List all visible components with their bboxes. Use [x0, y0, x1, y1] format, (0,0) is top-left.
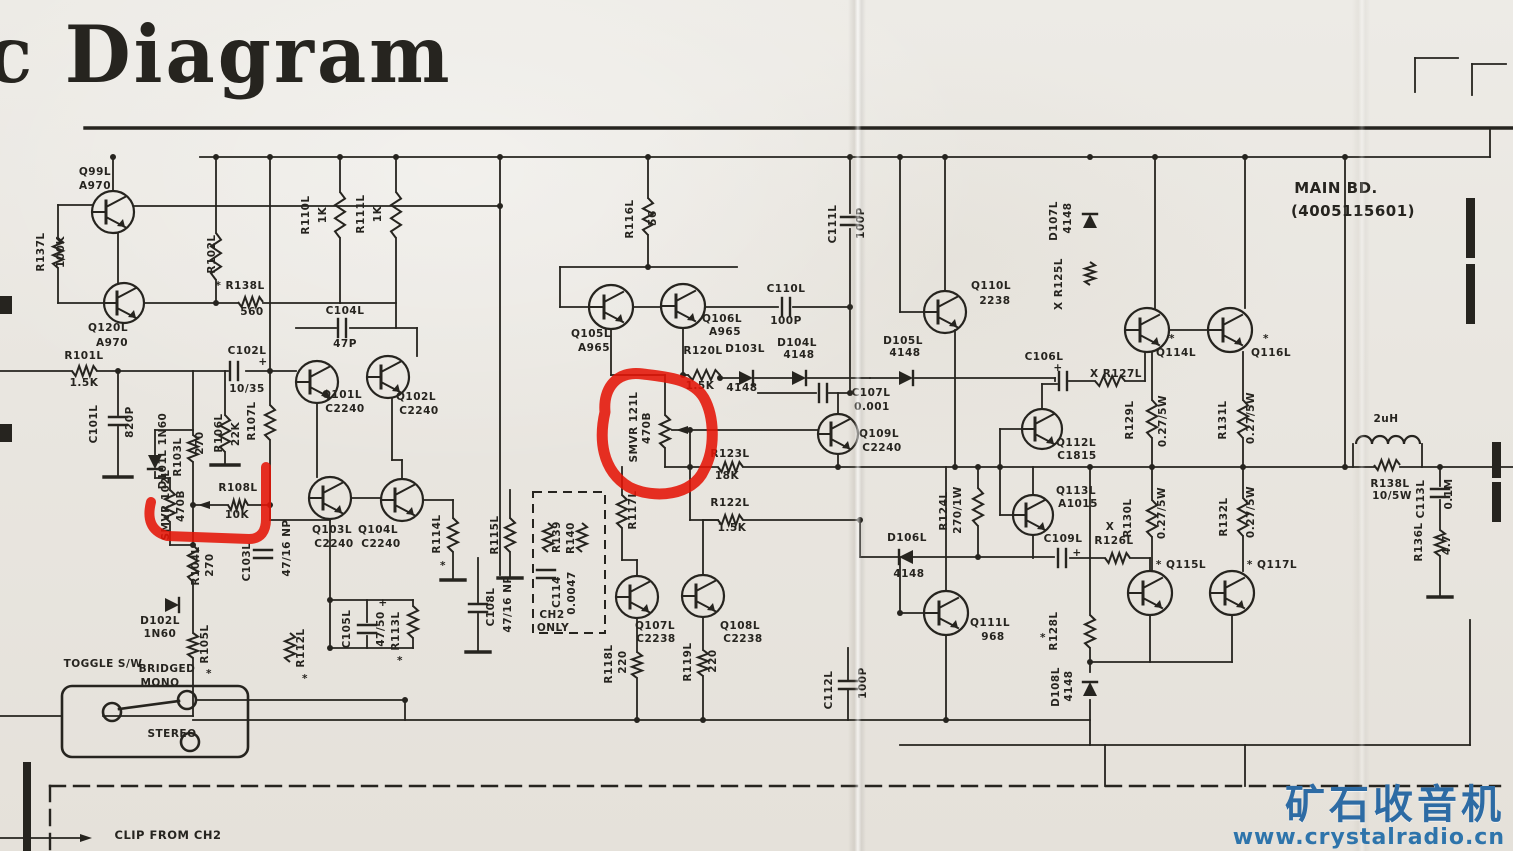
- component-label: Q99L: [79, 166, 111, 178]
- transistor-symbol: [323, 483, 342, 493]
- component-label: D102L: [140, 615, 180, 627]
- junction-dot: [1087, 154, 1093, 160]
- resistor-symbol: [188, 633, 198, 658]
- component-label: 100P: [770, 315, 802, 327]
- component-label: R101L: [64, 350, 103, 362]
- junction-dot: [1342, 464, 1348, 470]
- resistor-symbol: [1105, 553, 1130, 563]
- component-label: Q120L: [88, 322, 128, 334]
- component-label: C2240: [862, 442, 901, 454]
- component-label: R115L: [489, 515, 501, 554]
- component-label: 4148: [889, 347, 920, 359]
- component-label: 270: [204, 553, 216, 576]
- junction-dot: [402, 697, 408, 703]
- component-label: R111L: [355, 194, 367, 233]
- component-label: R104L: [190, 546, 202, 585]
- component-label: R130L: [1122, 498, 1134, 537]
- junction-dot: [1152, 154, 1158, 160]
- transistor-symbol: [604, 292, 623, 302]
- component-label: R138L: [1370, 478, 1409, 490]
- component-label: MONO: [140, 677, 179, 689]
- component-label: 1N60: [144, 628, 177, 640]
- junction-dot: [857, 517, 863, 523]
- component-label: 4148: [893, 568, 924, 580]
- component-label: Q111L: [970, 617, 1010, 629]
- resistor-symbol: [1147, 400, 1157, 438]
- component-label: 47/16 NP: [502, 575, 514, 632]
- terminal-bar: [1492, 442, 1501, 478]
- component-label: 4148: [783, 349, 814, 361]
- component-label: *: [302, 673, 308, 685]
- component-label: R114L: [431, 514, 443, 553]
- component-label: 820P: [124, 406, 136, 438]
- transistor-symbol: [696, 581, 715, 591]
- junction-dot: [634, 717, 640, 723]
- component-label: R105L: [199, 624, 211, 663]
- component-label: D105L: [883, 335, 923, 347]
- diode-symbol: [899, 371, 913, 385]
- component-label: R129L: [1124, 400, 1136, 439]
- component-label: Q106L: [702, 313, 742, 325]
- resistor-symbol: [1374, 460, 1400, 470]
- junction-dot: [110, 154, 116, 160]
- transistor-symbol: [938, 297, 957, 307]
- junction-dot: [897, 154, 903, 160]
- terminal-bar: [1492, 482, 1501, 522]
- component-label: *: [1263, 333, 1269, 345]
- component-label: R120L: [683, 345, 722, 357]
- junction-dot: [1087, 659, 1093, 665]
- junction-dot: [1087, 464, 1093, 470]
- resistor-symbol: [265, 405, 275, 440]
- component-label: C113L: [1415, 480, 1427, 519]
- component-label: Q108L: [720, 620, 760, 632]
- junction-dot: [393, 154, 399, 160]
- diode-symbol: [1083, 682, 1097, 696]
- terminal-bar: [1466, 264, 1475, 324]
- component-label: 47P: [333, 338, 357, 350]
- junction-dot: [1437, 464, 1443, 470]
- component-label: C104L: [326, 305, 365, 317]
- component-label: *: [440, 560, 446, 572]
- junction-dot: [997, 464, 1003, 470]
- junction-dot: [190, 502, 196, 508]
- junction-dot: [337, 154, 343, 160]
- transistor-symbol: [310, 367, 329, 377]
- arrow-head: [198, 501, 210, 509]
- component-label: R119L: [682, 642, 694, 681]
- junction-dot: [942, 154, 948, 160]
- component-label: A970: [96, 337, 128, 349]
- junction-dot: [1240, 464, 1246, 470]
- component-label: R117L: [627, 490, 639, 529]
- resistor-symbol: [617, 495, 627, 528]
- transistor-symbol: [1223, 315, 1242, 325]
- junction-dot: [943, 717, 949, 723]
- terminal-bar: [0, 424, 12, 442]
- junction-dot: [213, 154, 219, 160]
- component-label: R103L: [172, 437, 184, 476]
- component-label: R122L: [710, 497, 749, 509]
- resistor-symbol: [335, 192, 345, 238]
- component-label: A1015: [1058, 498, 1098, 510]
- component-label: C1815: [1057, 450, 1096, 462]
- component-label: 270/1W: [952, 486, 964, 534]
- component-label: (4005115601): [1291, 202, 1415, 220]
- transistor-symbol: [831, 419, 850, 429]
- component-label: R131L: [1217, 400, 1229, 439]
- component-label: 470B: [175, 490, 187, 522]
- component-label: 0.001: [854, 401, 890, 413]
- component-label: X R127L: [1090, 368, 1142, 380]
- component-label: A970: [79, 180, 111, 192]
- transistor-symbol: [1140, 315, 1159, 325]
- toggle-switch-contact: [103, 703, 121, 721]
- junction-dot: [327, 597, 333, 603]
- component-label: 10/35: [229, 383, 265, 395]
- component-label: 100P: [855, 207, 867, 239]
- toggle-switch-box: [62, 686, 248, 757]
- component-label: R112L: [295, 628, 307, 667]
- junction-dot: [835, 464, 841, 470]
- component-label: C107L: [852, 387, 891, 399]
- component-label: 2238: [979, 295, 1010, 307]
- junction-dot: [1149, 464, 1155, 470]
- junction-dot: [1242, 154, 1248, 160]
- transistor-symbol: [1225, 578, 1244, 588]
- component-label: 10/5W: [1372, 490, 1412, 502]
- junction-dot: [975, 554, 981, 560]
- component-label: X: [1106, 521, 1115, 533]
- component-label: BRIDGED: [139, 663, 196, 675]
- component-label: Q109L: [859, 428, 899, 440]
- component-label: 47/50: [375, 611, 387, 647]
- component-label: 470B: [641, 412, 653, 444]
- component-label: C103L: [241, 543, 253, 582]
- transistor-symbol: [1026, 500, 1045, 510]
- junction-dot: [645, 154, 651, 160]
- junction-dot: [687, 464, 693, 470]
- component-label: 4148: [1063, 670, 1075, 701]
- component-label: D103L: [725, 343, 765, 355]
- component-label: C2240: [314, 538, 353, 550]
- component-label: C105L: [341, 610, 353, 649]
- component-label: 0.1M: [1443, 478, 1455, 509]
- component-label: * Q117L: [1247, 559, 1297, 571]
- component-label: 968: [981, 631, 1004, 643]
- component-label: 10K: [225, 509, 250, 521]
- component-label: R140: [565, 522, 577, 554]
- component-label: *: [206, 668, 212, 680]
- component-label: C101L: [88, 405, 100, 444]
- component-label: 100P: [857, 667, 869, 699]
- resistor-symbol: [660, 415, 670, 448]
- component-label: R139: [551, 521, 563, 553]
- component-label: 1K: [372, 205, 384, 222]
- component-label: Q110L: [971, 280, 1011, 292]
- component-label: 0.27/5W: [1245, 486, 1257, 538]
- junction-dot: [267, 154, 273, 160]
- diode-symbol: [1083, 214, 1097, 228]
- component-label: 220: [707, 649, 719, 672]
- component-label: 1.5K: [718, 522, 747, 534]
- component-label: Q116L: [1251, 347, 1291, 359]
- component-label: * Q115L: [1156, 559, 1206, 571]
- component-label: 0.0047: [566, 571, 578, 615]
- terminal-bar: [23, 762, 31, 851]
- component-label: D104L: [777, 337, 817, 349]
- junction-dot: [847, 154, 853, 160]
- component-label: STEREO: [147, 728, 196, 740]
- component-label: R107L: [246, 401, 258, 440]
- component-label: 100K: [55, 236, 67, 268]
- component-label: 0.27/5W: [1156, 487, 1168, 539]
- component-label: 4148: [1062, 202, 1074, 233]
- component-label: 270: [194, 431, 206, 454]
- component-label: Q104L: [358, 524, 398, 536]
- component-label: R132L: [1218, 497, 1230, 536]
- component-label: R118L: [603, 644, 615, 683]
- resistor-symbol: [448, 518, 458, 552]
- junction-dot: [975, 464, 981, 470]
- component-label: 18K: [715, 470, 740, 482]
- component-label: 560: [240, 306, 263, 318]
- resistor-symbol: [973, 488, 983, 526]
- junction-dot: [115, 368, 121, 374]
- component-label: 1.5K: [70, 377, 99, 389]
- transistor-symbol: [1143, 578, 1162, 588]
- transistor-symbol: [117, 288, 136, 298]
- junction-dot: [952, 464, 958, 470]
- component-label: D106L: [887, 532, 927, 544]
- toggle-switch-arm: [119, 701, 179, 709]
- component-label: R136L: [1413, 522, 1425, 561]
- component-label: +: [258, 356, 267, 368]
- component-label: C108L: [485, 588, 497, 627]
- component-label: 2uH: [1373, 413, 1398, 425]
- component-label: Q113L: [1056, 485, 1096, 497]
- resistor-symbol: [408, 606, 418, 638]
- junction-dot: [897, 610, 903, 616]
- component-label: 1K: [317, 206, 329, 223]
- coil-symbol: [1356, 436, 1420, 444]
- component-label: 4.7: [1441, 535, 1453, 555]
- diode-symbol: [792, 371, 806, 385]
- transistor-symbol: [676, 291, 695, 301]
- component-label: TOGGLE S/W: [64, 658, 143, 670]
- junction-dot: [213, 300, 219, 306]
- schematic-sheet: c Diagram Q99LA970Q120LA970R101L1.5K* R1…: [0, 0, 1513, 851]
- component-label: C2240: [361, 538, 400, 550]
- component-label: +: [1053, 362, 1062, 374]
- component-label: D108L: [1050, 667, 1062, 707]
- component-label: 0.27/5W: [1157, 395, 1169, 447]
- transistor-symbol: [381, 362, 400, 372]
- component-label: C2240: [399, 405, 438, 417]
- component-label: C114: [551, 576, 563, 608]
- component-label: 22K: [230, 422, 242, 447]
- junction-dot: [847, 304, 853, 310]
- transistor-symbol: [630, 582, 649, 592]
- resistor-symbol: [505, 518, 515, 552]
- junction-dot: [700, 717, 706, 723]
- component-label: MAIN BD.: [1294, 179, 1377, 197]
- resistor-symbol: [577, 523, 587, 552]
- terminal-bar: [1466, 198, 1475, 258]
- transistor-symbol: [1035, 414, 1054, 424]
- component-label: R137L: [35, 232, 47, 271]
- terminal-bar: [0, 296, 12, 314]
- junction-dot: [645, 264, 651, 270]
- component-label: R124L: [938, 491, 950, 530]
- diode-symbol: [165, 598, 179, 612]
- component-label: Q105L: [571, 328, 611, 340]
- component-label: CH2: [539, 609, 564, 621]
- component-label: R116L: [624, 199, 636, 238]
- component-label: *: [1040, 632, 1046, 644]
- component-label: Q107L: [635, 620, 675, 632]
- component-label: R113L: [390, 611, 402, 650]
- transistor-symbol: [395, 485, 414, 495]
- resistor-symbol: [391, 192, 401, 238]
- red-annotation-circle: [602, 373, 712, 493]
- component-label: C2240: [325, 403, 364, 415]
- component-label: 47/16 NP: [281, 519, 293, 576]
- component-label: CLIP FROM CH2: [115, 828, 222, 842]
- component-label: C2238: [636, 633, 675, 645]
- junction-dot: [327, 645, 333, 651]
- component-label: +: [378, 597, 387, 609]
- component-label: Q102L: [396, 391, 436, 403]
- component-label: C112L: [823, 671, 835, 710]
- component-label: R110L: [300, 195, 312, 234]
- resistor-symbol: [1085, 262, 1095, 285]
- diode-symbol: [899, 550, 913, 564]
- junction-dot: [1342, 154, 1348, 160]
- component-label: X R125L: [1053, 258, 1065, 310]
- transistor-symbol: [106, 197, 125, 207]
- component-label: R106L: [213, 413, 225, 452]
- component-label: Q114L: [1156, 347, 1196, 359]
- component-label: Q112L: [1056, 437, 1096, 449]
- component-label: C109L: [1044, 533, 1083, 545]
- resistor-symbol: [688, 370, 720, 380]
- component-label: R102L: [206, 234, 218, 273]
- junction-dot: [717, 375, 723, 381]
- component-label: SMVR 121L: [628, 392, 640, 463]
- component-label: +: [1072, 547, 1081, 559]
- transistor-symbol: [939, 598, 958, 608]
- component-label: R108L: [218, 482, 257, 494]
- component-label: A965: [578, 342, 610, 354]
- component-label: * R138L: [215, 280, 264, 292]
- arrow-head: [80, 834, 92, 842]
- component-label: 0.27/5W: [1245, 392, 1257, 444]
- component-label: Q101L: [322, 389, 362, 401]
- component-label: A965: [709, 326, 741, 338]
- component-label: 4148: [726, 382, 757, 394]
- junction-dot: [267, 368, 273, 374]
- resistor-symbol: [285, 633, 295, 662]
- component-label: C110L: [767, 283, 806, 295]
- resistor-symbol: [72, 366, 97, 376]
- component-label: *: [1169, 333, 1175, 345]
- arrow-head: [676, 426, 688, 434]
- junction-dot: [497, 154, 503, 160]
- schematic-canvas: Q99LA970Q120LA970R101L1.5K* R138L560C102…: [0, 0, 1513, 851]
- junction-dot: [497, 203, 503, 209]
- component-label: *: [397, 655, 403, 667]
- component-label: C2238: [723, 633, 762, 645]
- component-label: 56: [647, 210, 659, 226]
- resistor-symbol: [632, 652, 642, 678]
- component-label: C111L: [827, 205, 839, 244]
- component-label: ONLY: [537, 622, 569, 634]
- component-label: R128L: [1048, 611, 1060, 650]
- component-label: 220: [617, 650, 629, 673]
- resistor-symbol: [1085, 615, 1095, 648]
- component-label: D107L: [1048, 201, 1060, 241]
- component-label: Q103L: [312, 524, 352, 536]
